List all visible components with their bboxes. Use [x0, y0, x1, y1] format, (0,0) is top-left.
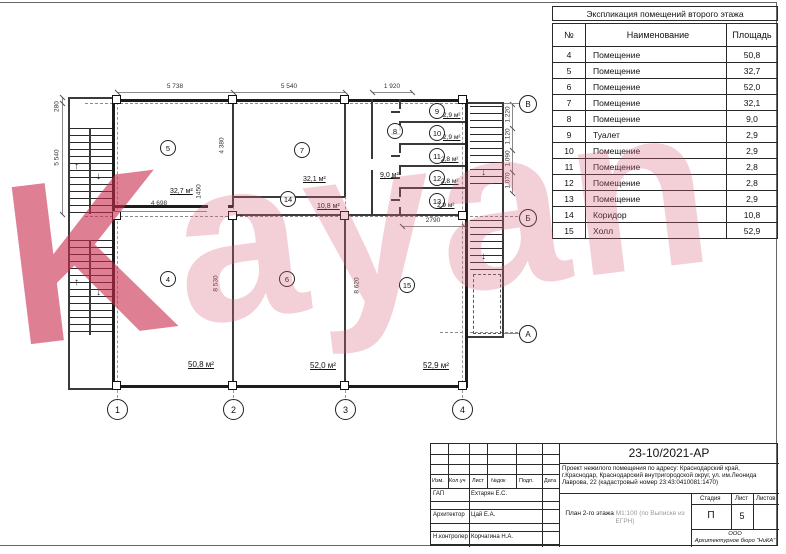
dim-text: 1450	[196, 157, 203, 227]
grid-line	[431, 531, 559, 532]
room-number-label: 6	[285, 275, 289, 284]
axis-marker-4: 4	[452, 399, 473, 420]
room-number-label: 8	[393, 127, 397, 136]
wall	[400, 143, 465, 145]
stage-value: П	[691, 510, 731, 521]
grid-line	[469, 444, 470, 547]
wall	[68, 97, 114, 99]
tb-col-label: №док	[491, 478, 506, 484]
cell-num: 11	[553, 159, 586, 175]
axis-label: Б	[525, 214, 530, 223]
room-area: 2,8 м²	[441, 156, 458, 163]
col-header-num: №	[553, 24, 586, 47]
cell-area: 52,0	[727, 79, 778, 95]
room-number-label: 14	[284, 195, 292, 204]
column	[340, 381, 349, 390]
cell-num: 13	[553, 191, 586, 207]
cell-num: 15	[553, 223, 586, 239]
tb-col-label: Подп.	[519, 478, 534, 484]
axis-marker-2: 2	[223, 399, 244, 420]
dim-line	[112, 211, 207, 212]
room-number-label: 11	[433, 152, 441, 161]
tb-role-name: Цай Е.А.	[471, 512, 495, 518]
axis-line-v	[85, 103, 518, 104]
drawing-sheet: ↑ ↓ ↑ ↓ ↓ ↓ 5 738 5 540	[0, 0, 786, 554]
room-number: 4	[160, 271, 176, 287]
table-row: 6Помещение52,0	[553, 79, 778, 95]
axis-marker-b: Б	[519, 209, 537, 227]
cell-area: 2,8	[727, 159, 778, 175]
wall	[232, 215, 234, 387]
cell-area: 2,9	[727, 127, 778, 143]
grid-line	[691, 504, 779, 505]
grid-line	[431, 501, 559, 502]
wall	[400, 187, 465, 189]
grid-line	[431, 464, 559, 465]
room-number-label: 5	[166, 144, 170, 153]
axis-leader	[504, 103, 519, 104]
column	[340, 95, 349, 104]
cell-name: Помещение	[586, 159, 727, 175]
wall	[468, 336, 504, 338]
room-number: 8	[387, 123, 403, 139]
column	[228, 381, 237, 390]
stair-treads	[470, 106, 502, 186]
room-area: 2,9 м²	[443, 134, 460, 141]
elevator-shaft	[473, 274, 501, 334]
column	[112, 95, 121, 104]
col-header-name: Наименование	[586, 24, 727, 47]
tb-col-label: Дата	[544, 478, 556, 484]
dim-line	[117, 92, 345, 93]
column	[112, 381, 121, 390]
axis-label: В	[525, 100, 530, 109]
room-number: 6	[279, 271, 295, 287]
wall	[371, 170, 373, 216]
drawing-title-text: План 2-го этажа	[565, 510, 614, 517]
cell-name: Помещение	[586, 191, 727, 207]
table-row: 10Помещение2,9	[553, 143, 778, 159]
grid-line	[753, 493, 754, 529]
room-number: 14	[280, 191, 296, 207]
table-row: 9Туалет2,9	[553, 127, 778, 143]
room-area: 10,8 м²	[317, 203, 340, 210]
cell-name: Помещение	[586, 63, 727, 79]
room-number-label: 4	[166, 275, 170, 284]
stair-treads	[470, 220, 502, 270]
column	[458, 95, 467, 104]
stair-up-arrow: ↑	[74, 278, 79, 288]
wall	[344, 99, 346, 197]
room-area: 32,7 м²	[170, 188, 193, 195]
room-number-label: 9	[435, 107, 439, 116]
column	[112, 211, 121, 220]
wall	[344, 215, 346, 387]
cell-name: Туалет	[586, 127, 727, 143]
column	[340, 211, 349, 220]
table-row: 11Помещение2,8	[553, 159, 778, 175]
wall	[228, 205, 233, 208]
axis-marker-v: В	[519, 95, 537, 113]
table-row: 15Холл52,9	[553, 223, 778, 239]
cell-num: 12	[553, 175, 586, 191]
room-area: 52,9 м²	[423, 361, 449, 370]
grid-line	[431, 523, 559, 524]
cell-num: 9	[553, 127, 586, 143]
room-area: 9,0 м²	[380, 172, 399, 179]
axis-label: А	[525, 330, 530, 339]
explication-table: № Наименование Площадь 4Помещение50,8 5П…	[552, 23, 778, 239]
sheet-value: 5	[731, 511, 753, 521]
table-title: Экспликация помещений второго этажа	[552, 6, 778, 21]
dim-text: 8 620	[354, 251, 361, 321]
grid-line	[431, 544, 559, 545]
cell-name: Помещение	[586, 111, 727, 127]
room-area: 52,0 м²	[310, 361, 336, 370]
grid-line	[431, 488, 559, 489]
title-block: Изм. Кол.уч Лист №док Подп. Дата ГАП Ехт…	[430, 443, 778, 546]
column	[458, 381, 467, 390]
axis-leader	[504, 333, 519, 334]
wall	[112, 99, 468, 102]
grid-line	[431, 474, 559, 475]
tb-col-label: Лист	[472, 478, 484, 484]
stair-down-arrow: ↓	[481, 168, 486, 178]
cell-name: Коридор	[586, 207, 727, 223]
wall	[400, 165, 465, 167]
dim-text: 1 920	[357, 83, 427, 90]
tb-col-label: Изм.	[432, 478, 444, 484]
grid-line	[691, 529, 779, 530]
door-leaf	[391, 111, 400, 113]
wall	[233, 214, 465, 216]
cell-area: 9,0	[727, 111, 778, 127]
cell-num: 10	[553, 143, 586, 159]
cell-num: 4	[553, 47, 586, 63]
room-number-label: 10	[433, 129, 441, 138]
drawing-scale-note: М1:100 (по Выписке из ЕГРН)	[615, 510, 684, 525]
wall	[399, 99, 401, 109]
table-row: 13Помещение2,9	[553, 191, 778, 207]
wall	[399, 165, 401, 175]
axis-line-1	[117, 97, 118, 403]
stair-down-arrow: ↓	[481, 252, 486, 262]
dim-text: 4 380	[219, 111, 226, 181]
dim-text: 5 540	[54, 123, 61, 193]
table-row: 5Помещение32,7	[553, 63, 778, 79]
stair-divider	[89, 240, 91, 335]
drawing-title: План 2-го этажа М1:100 (по Выписке из ЕГ…	[563, 510, 687, 526]
room-number: 15	[399, 277, 415, 293]
cell-name: Холл	[586, 223, 727, 239]
grid-line	[487, 444, 488, 488]
room-number-label: 7	[300, 146, 304, 155]
cell-num: 6	[553, 79, 586, 95]
doc-number: 23-10/2021-АР	[559, 446, 779, 460]
tb-role-name: Корчагина Н.А.	[471, 534, 513, 540]
column	[228, 95, 237, 104]
tb-col-label: Кол.уч	[449, 478, 466, 484]
table-row: 7Помещение32,1	[553, 95, 778, 111]
stair-down-arrow: ↓	[96, 288, 101, 298]
grid-line	[559, 463, 779, 464]
room-number: 7	[294, 142, 310, 158]
dim-text: 2790	[398, 217, 468, 224]
tb-role: ГАП	[433, 491, 444, 497]
table-row: 12Помещение2,8	[553, 175, 778, 191]
door-leaf	[391, 199, 400, 201]
cell-area: 52,9	[727, 223, 778, 239]
cell-name: Помещение	[586, 79, 727, 95]
cell-area: 32,1	[727, 95, 778, 111]
wall	[399, 143, 401, 153]
cell-area: 2,9	[727, 143, 778, 159]
room-area: 2,8 м²	[441, 178, 458, 185]
cell-area: 2,8	[727, 175, 778, 191]
grid-line	[516, 444, 517, 488]
cell-num: 7	[553, 95, 586, 111]
project-description: Проект нежилого помещения по адресу: Кра…	[562, 465, 774, 486]
wall	[112, 385, 468, 388]
stair-up-arrow: ↑	[74, 162, 79, 172]
grid-line	[542, 444, 543, 547]
cell-area: 2,9	[727, 191, 778, 207]
cell-num: 14	[553, 207, 586, 223]
cell-area: 32,7	[727, 63, 778, 79]
table-title-text: Экспликация помещений второго этажа	[586, 9, 743, 19]
door-leaf	[391, 155, 400, 157]
room-area: 2,9 м²	[437, 202, 454, 209]
wall	[468, 102, 504, 104]
room-number-label: 15	[403, 281, 411, 290]
tb-role: Архитектор	[433, 512, 465, 518]
table-header-row: № Наименование Площадь	[553, 24, 778, 47]
wall	[399, 187, 401, 197]
tb-role: Н.контролер	[433, 534, 468, 540]
room-number: 5	[160, 140, 176, 156]
wall	[400, 121, 465, 123]
stair-down-arrow: ↓	[96, 172, 101, 182]
tb-right: 23-10/2021-АР Проект нежилого помещения …	[559, 444, 779, 547]
cell-area: 50,8	[727, 47, 778, 63]
sheet-label: Лист	[735, 496, 748, 502]
room-area: 32,1 м²	[303, 176, 326, 183]
table-row: 14Коридор10,8	[553, 207, 778, 223]
axis-label: 2	[231, 405, 236, 415]
axis-marker-1: 1	[107, 399, 128, 420]
dim-line	[62, 97, 63, 215]
wall	[399, 207, 401, 215]
wall	[68, 388, 114, 390]
grid-line	[431, 454, 559, 455]
cell-name: Помещение	[586, 175, 727, 191]
axis-label: 3	[343, 405, 348, 415]
tb-role-name: Ехтарян Е.С.	[471, 491, 507, 497]
cell-name: Помещение	[586, 95, 727, 111]
wall	[465, 99, 468, 388]
table-row: 8Помещение9,0	[553, 111, 778, 127]
dim-text: 5 540	[254, 83, 324, 90]
axis-marker-3: 3	[335, 399, 356, 420]
dim-line	[402, 226, 465, 227]
table-row: 4Помещение50,8	[553, 47, 778, 63]
column	[228, 211, 237, 220]
stair-divider	[89, 128, 91, 214]
axis-label: 4	[460, 405, 465, 415]
dim-line	[372, 92, 413, 93]
dim-text: 5 738	[140, 83, 210, 90]
room-number-label: 12	[433, 174, 441, 183]
cell-num: 8	[553, 111, 586, 127]
stage-label: Стадия	[700, 496, 720, 502]
axis-marker-a: А	[519, 325, 537, 343]
cell-name: Помещение	[586, 143, 727, 159]
room-area: 50,8 м²	[188, 360, 214, 369]
cell-area: 10,8	[727, 207, 778, 223]
dim-text: 8 530	[213, 249, 220, 319]
wall	[112, 99, 115, 388]
dim-text: 4 698	[124, 200, 194, 207]
wall	[371, 99, 373, 159]
grid-line	[559, 493, 779, 494]
sheets-label: Листов	[756, 496, 776, 502]
dim-text: 1.070	[505, 146, 512, 216]
grid-line	[431, 509, 559, 510]
axis-label: 1	[115, 405, 120, 415]
company-name: ООО Архитектурное бюро "НиКА"	[691, 531, 779, 545]
wall	[232, 99, 234, 207]
cell-num: 5	[553, 63, 586, 79]
room-area: 2,9 м²	[443, 112, 460, 119]
col-header-area: Площадь	[727, 24, 778, 47]
cell-name: Помещение	[586, 47, 727, 63]
